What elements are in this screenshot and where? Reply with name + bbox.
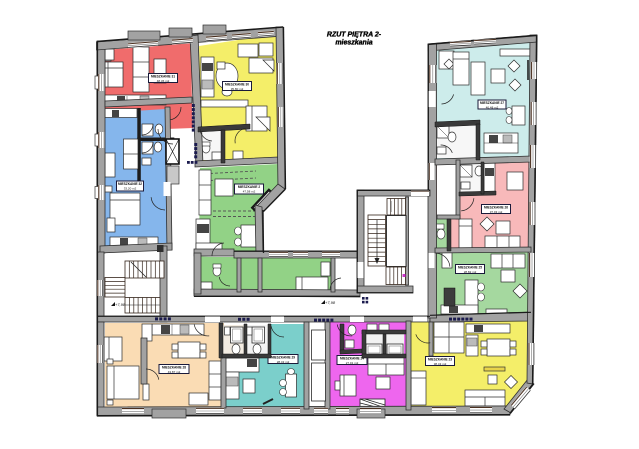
svg-text:43,87 m2: 43,87 m2 — [168, 370, 181, 374]
svg-text:27,01 m2: 27,01 m2 — [346, 361, 359, 365]
svg-text:RZUT PIĘTRA 2-: RZUT PIĘTRA 2- — [327, 32, 382, 39]
svg-text:37,03 m2: 37,03 m2 — [490, 210, 503, 214]
svg-text:28,82 m2: 28,82 m2 — [464, 270, 477, 274]
svg-text:47,58 m2: 47,58 m2 — [243, 189, 256, 193]
svg-text:28,43 m2: 28,43 m2 — [277, 360, 290, 364]
svg-text:35,80 m2: 35,80 m2 — [231, 87, 244, 91]
svg-text:38,43 m2: 38,43 m2 — [434, 362, 447, 366]
svg-text:33,20 m2: 33,20 m2 — [124, 186, 137, 190]
svg-text:+7,98: +7,98 — [115, 302, 126, 307]
svg-text:mieszkania: mieszkania — [335, 40, 372, 47]
svg-text:40,48 m2: 40,48 m2 — [486, 105, 499, 109]
svg-text:48,36 m2: 48,36 m2 — [157, 79, 170, 83]
svg-text:+7,98: +7,98 — [325, 300, 336, 305]
